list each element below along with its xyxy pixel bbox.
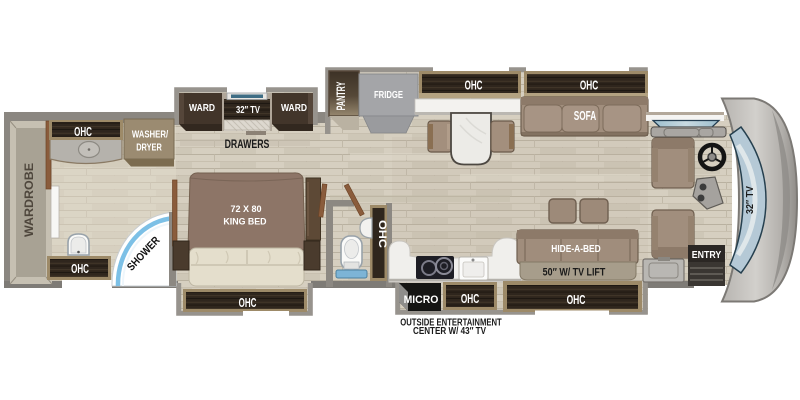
svg-text:DRAWERS: DRAWERS bbox=[225, 138, 270, 152]
svg-text:MICRO: MICRO bbox=[404, 294, 439, 306]
svg-text:ENTRY: ENTRY bbox=[692, 249, 722, 261]
svg-text:KING BED: KING BED bbox=[223, 216, 266, 226]
svg-text:OHC: OHC bbox=[239, 297, 257, 310]
svg-text:OHC: OHC bbox=[74, 126, 92, 139]
svg-text:32″ TV: 32″ TV bbox=[236, 104, 260, 115]
svg-text:SOFA: SOFA bbox=[574, 109, 597, 123]
svg-text:DRYER: DRYER bbox=[136, 141, 162, 152]
svg-text:PANTRY: PANTRY bbox=[335, 81, 348, 110]
svg-text:WARD: WARD bbox=[281, 102, 307, 113]
svg-text:OHC: OHC bbox=[465, 80, 483, 93]
svg-text:FRIDGE: FRIDGE bbox=[374, 89, 403, 100]
svg-text:WASHER/: WASHER/ bbox=[132, 129, 169, 140]
svg-text:OHC: OHC bbox=[71, 263, 89, 276]
svg-text:OHC: OHC bbox=[461, 292, 480, 306]
svg-text:OHC: OHC bbox=[376, 220, 389, 249]
svg-text:50″ W/ TV LIFT: 50″ W/ TV LIFT bbox=[543, 267, 606, 279]
svg-text:32″ TV: 32″ TV bbox=[745, 185, 757, 214]
svg-text:WARDROBE: WARDROBE bbox=[22, 163, 36, 237]
svg-text:WARD: WARD bbox=[189, 102, 215, 113]
svg-text:HIDE-A-BED: HIDE-A-BED bbox=[551, 243, 601, 255]
svg-text:72 X 80: 72 X 80 bbox=[230, 204, 261, 214]
svg-text:OHC: OHC bbox=[567, 293, 586, 307]
svg-text:CENTER W/ 43″ TV: CENTER W/ 43″ TV bbox=[413, 325, 486, 336]
svg-text:OHC: OHC bbox=[580, 79, 599, 93]
